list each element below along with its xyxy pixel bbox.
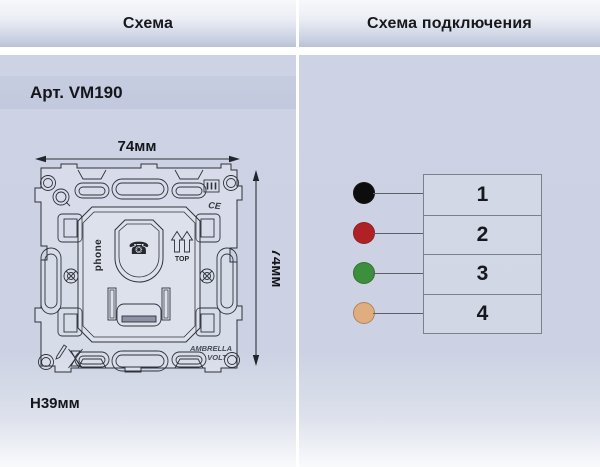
top-orientation-label: TOP [175,256,190,263]
wire-dot-green [353,262,375,284]
article-label: Арт. VM190 [30,83,123,103]
terminal-row-4: 4 [424,294,541,334]
terminal-row-3: 3 [424,254,541,294]
phone-module-label: phone [93,239,104,272]
terminal-number-1: 1 [477,183,489,207]
terminal-number-2: 2 [477,223,489,247]
dimension-width-label: 74мм [118,138,157,155]
wire-line-2 [373,233,423,234]
mechanism-drawing: 74мм 74мм [25,130,280,395]
brand-line2: VOLT [207,353,228,362]
wire-dot-black [353,182,375,204]
scheme-panel-header: Схема [0,0,296,47]
wiring-panel: Схема подключения 1 2 3 [299,0,600,467]
wiring-panel-body: 1 2 3 4 [299,55,600,467]
phone-icon: ☎ [128,239,149,258]
terminal-row-2: 2 [424,215,541,255]
wire-line-3 [373,273,423,274]
terminal-row-1: 1 [424,175,541,215]
mechanism-drawing-svg: 74мм 74мм [25,130,280,395]
ce-mark: CE [208,200,222,211]
terminal-number-3: 3 [477,262,489,286]
wire-line-4 [373,313,423,314]
terminal-table: 1 2 3 4 [423,174,542,334]
brand-line1: AMBRELLA [189,344,232,353]
terminal-number-4: 4 [477,302,489,326]
product-schematic-image: Схема Арт. VM190 74мм [0,0,600,467]
scheme-panel-body: Арт. VM190 74мм 7 [0,55,296,467]
wiring-title: Схема подключения [367,15,532,33]
wire-dot-tan [353,302,375,324]
dimension-width: 74мм [35,138,240,162]
dimension-height-label: 74мм [268,249,280,288]
wire-dot-red [353,222,375,244]
scheme-title: Схема [123,15,173,33]
scheme-panel: Схема Арт. VM190 74мм [0,0,296,467]
dimension-height: 74мм [253,170,280,366]
wiring-panel-header: Схема подключения [299,0,600,47]
wire-line-1 [373,193,423,194]
depth-label: H39мм [30,395,80,412]
article-band: Арт. VM190 [0,76,296,109]
